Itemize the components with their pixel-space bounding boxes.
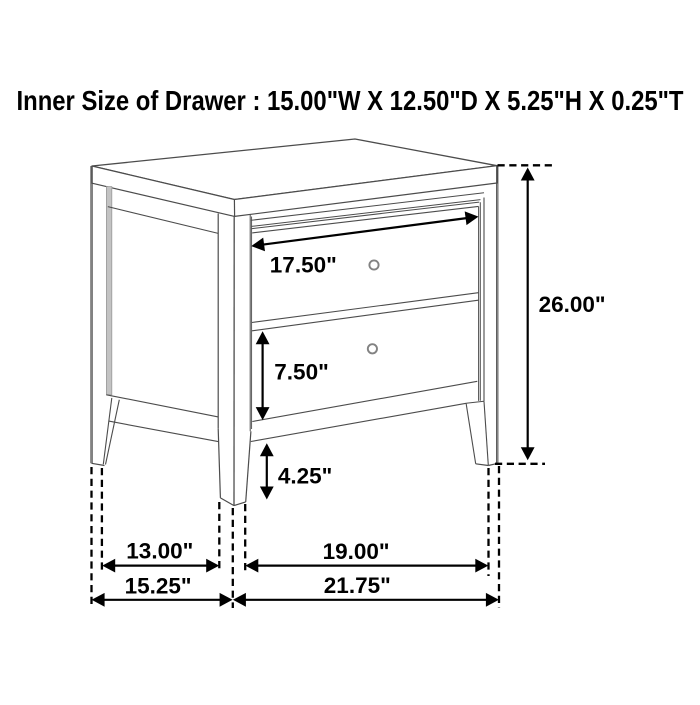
svg-text:15.25": 15.25" — [125, 574, 192, 599]
svg-text:26.00": 26.00" — [539, 292, 606, 317]
svg-text:19.00": 19.00" — [323, 539, 390, 564]
svg-text:21.75": 21.75" — [324, 573, 391, 598]
svg-text:Inner Size of Drawer : 15.00"W: Inner Size of Drawer : 15.00"W X 12.50"D… — [17, 85, 684, 116]
svg-text:17.50": 17.50" — [270, 253, 337, 278]
svg-text:4.25": 4.25" — [278, 464, 332, 489]
svg-text:7.50": 7.50" — [274, 360, 328, 385]
svg-text:13.00": 13.00" — [126, 538, 193, 563]
